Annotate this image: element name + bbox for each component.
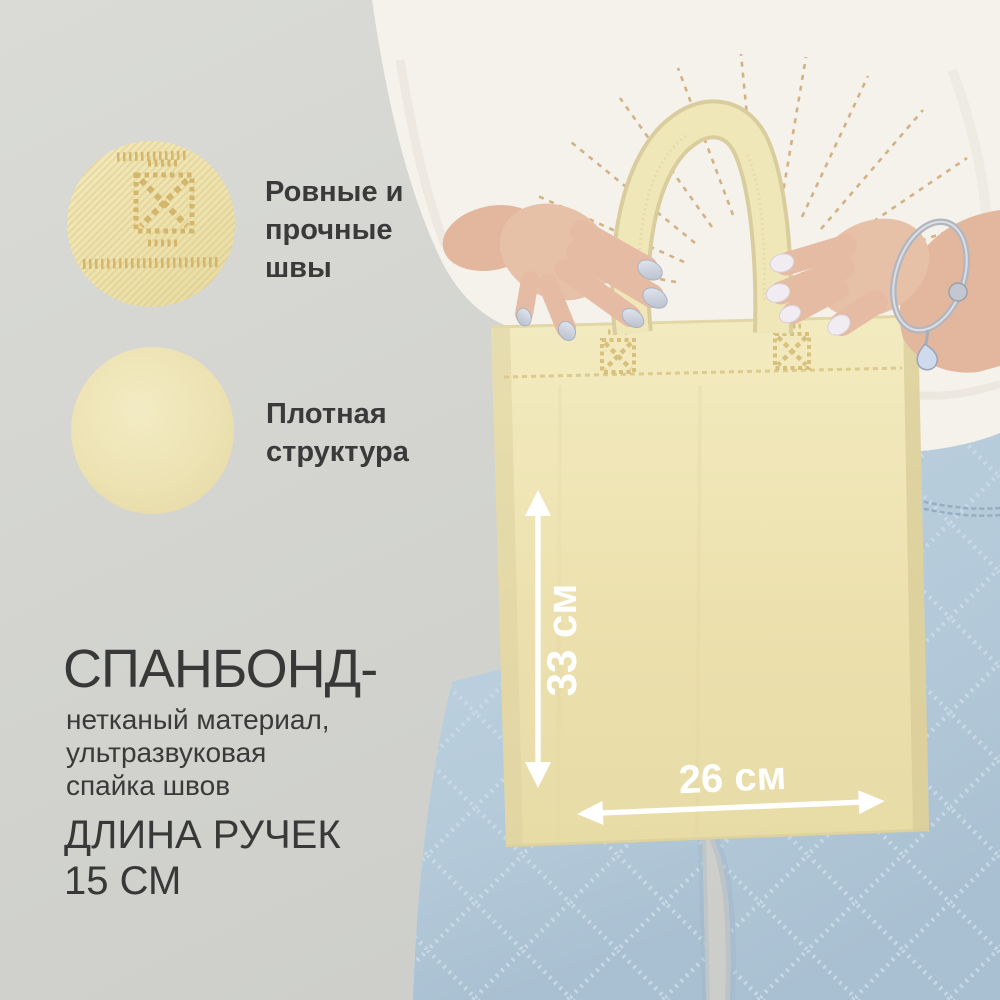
seam-stitch-pattern	[67, 141, 235, 307]
material-title: СПАНБОНД-	[63, 640, 377, 699]
handle-length-text: ДЛИНА РУЧЕК 15 СМ	[64, 812, 341, 904]
product-infographic: 33 см 26 см Ровные	[0, 0, 1000, 1000]
material-description: нетканый материал, ультразвуковая спайка…	[66, 703, 330, 802]
width-label: 26 см	[678, 754, 787, 802]
bracelet-charm	[949, 283, 967, 301]
feature-label-seams: Ровные и прочные швы	[265, 173, 403, 287]
feature-label-texture: Плотная структура	[266, 395, 409, 471]
handle-length-line2: 15 СМ	[64, 858, 341, 904]
texture-detail-swatch	[71, 347, 234, 514]
height-label: 33 см	[538, 584, 585, 697]
seam-detail-swatch	[67, 141, 235, 307]
handle-length-line1: ДЛИНА РУЧЕК	[64, 812, 341, 858]
